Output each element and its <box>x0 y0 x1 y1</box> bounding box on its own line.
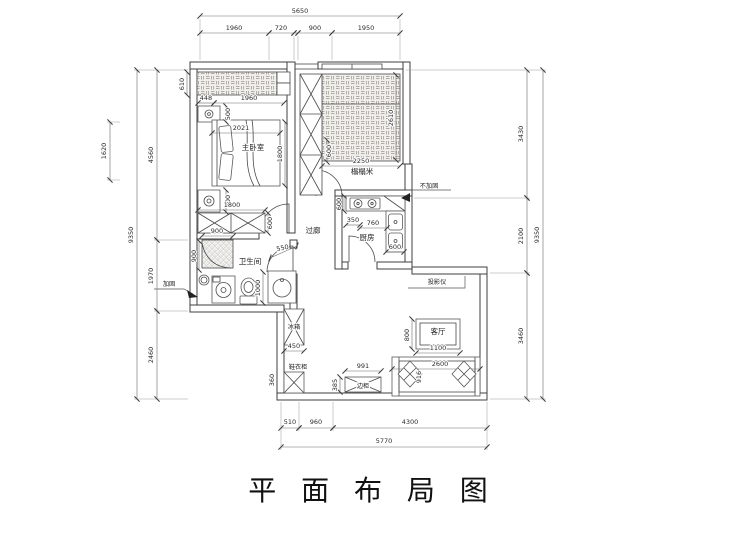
dim-table-1100: 1100 <box>430 344 447 352</box>
floor-plan-page: 5650 1960 720 900 1950 1620 9350 4560 19… <box>0 0 740 555</box>
dim-tatami-2610: 2610 <box>387 110 395 127</box>
tatami-area <box>300 74 400 195</box>
dim-bed-610: 610 <box>178 78 186 90</box>
dim-left-2: 1970 <box>147 268 155 285</box>
dim-left-1: 4560 <box>147 147 155 164</box>
dim-kitchen-350: 350 <box>347 216 359 224</box>
dim-left-aux: 1620 <box>100 143 108 160</box>
wash-basin-small <box>199 275 209 285</box>
dim-shoe-360: 360 <box>268 374 276 386</box>
dim-bed-1960: 1960 <box>241 94 258 102</box>
dim-top-3: 900 <box>309 24 321 32</box>
washing-machine <box>212 276 235 303</box>
dim-cabinet-991: 991 <box>357 362 369 370</box>
dim-bottom-1: 510 <box>284 418 296 426</box>
nightstand-bottom <box>198 190 220 212</box>
dim-left-3: 2460 <box>147 347 155 364</box>
sink-basin <box>389 214 403 230</box>
pillow-icon <box>219 153 234 180</box>
dim-top-1: 1960 <box>226 24 243 32</box>
dim-left-total: 9350 <box>127 227 135 244</box>
label-no-reinforce: 不加固 <box>420 182 439 190</box>
dim-bath-900-left: 900 <box>190 250 198 262</box>
dim-right-2: 2100 <box>517 228 525 245</box>
dim-bath-900-top: 900 <box>211 227 223 235</box>
dim-top-total: 5650 <box>292 7 309 15</box>
dim-bed-500-top: 500 <box>224 108 232 120</box>
vanity-basin <box>268 271 296 303</box>
dim-column-600: 600 <box>325 145 333 157</box>
wardrobe <box>198 213 265 233</box>
dim-sofa-916: 916 <box>415 371 423 383</box>
dim-kitchen-600-right: 600 <box>389 243 401 251</box>
label-tatami: 榻榻米 <box>351 166 374 176</box>
dim-bed-448: 448 <box>200 94 212 102</box>
dim-bed-2021: 2021 <box>233 124 250 132</box>
dim-right-1: 3430 <box>517 126 525 143</box>
label-fridge: 冰箱 <box>288 323 300 331</box>
dim-wardrobe-600: 600 <box>266 217 274 229</box>
floor-plan-drawing: 5650 1960 720 900 1950 1620 9350 4560 19… <box>0 0 740 555</box>
label-projector: 投影仪 <box>428 278 447 286</box>
dim-fridge-450: 450 <box>288 342 300 350</box>
label-living: 客厅 <box>431 326 446 336</box>
dim-wardrobe-1800: 1800 <box>224 201 241 209</box>
dim-sofa-2600: 2600 <box>432 360 449 368</box>
dim-bottom-2: 960 <box>310 418 322 426</box>
dim-bath-1000: 1000 <box>254 280 262 297</box>
dim-top-4: 1950 <box>358 24 375 32</box>
dim-bed-1800: 1800 <box>276 146 284 163</box>
label-side-cabinet: 边柜 <box>357 382 369 390</box>
dim-kitchen-760: 760 <box>367 219 379 227</box>
label-kitchen: 厨房 <box>360 232 375 242</box>
pillow-icon <box>219 125 234 152</box>
label-bedroom: 主卧室 <box>242 142 265 152</box>
dim-bottom-3: 4300 <box>402 418 419 426</box>
dim-right-total: 9350 <box>533 227 541 244</box>
dim-bottom-total: 5770 <box>376 437 393 445</box>
dim-table-800: 800 <box>403 329 411 341</box>
column-cabinet <box>300 74 322 195</box>
dim-kitchen-600-left: 600 <box>335 198 343 210</box>
dim-cabinet-385: 385 <box>331 379 339 391</box>
label-bathroom: 卫生间 <box>239 256 262 266</box>
label-shoe-cabinet: 鞋衣柜 <box>289 363 308 371</box>
page-title: 平 面 布 局 图 <box>248 474 496 507</box>
label-corridor: 过廊 <box>306 225 321 235</box>
dim-tatami-2250: 2250 <box>353 157 370 165</box>
stove <box>350 198 380 209</box>
shower-area <box>202 240 233 268</box>
dim-right-3: 3460 <box>517 328 525 345</box>
label-reinforce: 加固 <box>163 280 175 288</box>
dim-top-2: 720 <box>275 24 287 32</box>
shoe-cabinet-box <box>284 372 304 393</box>
dim-bath-550: 550 <box>276 243 290 253</box>
